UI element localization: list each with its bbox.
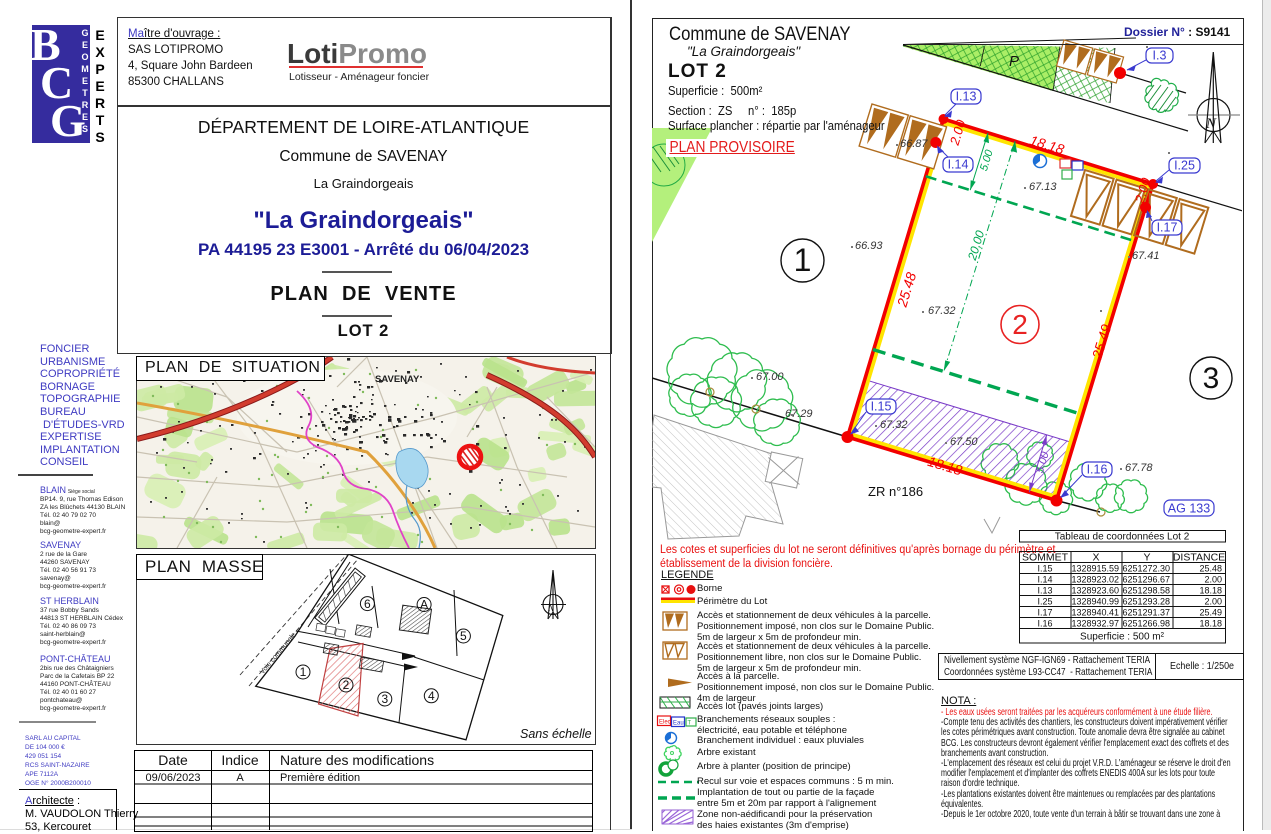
svg-text:P: P <box>95 61 104 77</box>
svg-text:G: G <box>50 95 86 146</box>
svg-text:2: 2 <box>1012 309 1028 340</box>
svg-text:6251293.28: 6251293.28 <box>1122 597 1170 607</box>
svg-text:Nature des modifications: Nature des modifications <box>280 752 434 768</box>
svg-text:67.50: 67.50 <box>950 436 978 448</box>
svg-text:S: S <box>95 129 104 145</box>
svg-text:I.17: I.17 <box>1157 221 1178 235</box>
svg-text:6251296.67: 6251296.67 <box>1122 575 1170 585</box>
svg-text:X: X <box>95 44 105 60</box>
svg-text:E: E <box>82 112 88 122</box>
svg-text:Superficie : 500 m²: Superficie : 500 m² <box>1080 632 1165 643</box>
svg-text:1328923.60: 1328923.60 <box>1071 586 1119 596</box>
svg-text:X: X <box>1092 552 1099 564</box>
svg-text:4: 4 <box>428 689 435 703</box>
svg-text:2: 2 <box>343 678 350 692</box>
svg-text:I.15: I.15 <box>871 400 892 414</box>
svg-text:E: E <box>95 78 104 94</box>
svg-text:Tableau de coordonnées Lot 2: Tableau de coordonnées Lot 2 <box>1055 532 1190 543</box>
svg-text:6251272.30: 6251272.30 <box>1122 564 1170 574</box>
svg-text:18.18: 18.18 <box>1199 586 1222 596</box>
svg-text:Indice: Indice <box>221 752 259 768</box>
svg-text:6251266.98: 6251266.98 <box>1122 619 1170 629</box>
svg-text:SOMMET: SOMMET <box>1022 552 1069 564</box>
svg-text:1328923.02: 1328923.02 <box>1071 575 1119 585</box>
svg-text:25.49: 25.49 <box>1199 608 1222 618</box>
svg-text:A: A <box>236 772 244 784</box>
svg-text:6251298.58: 6251298.58 <box>1122 586 1170 596</box>
svg-text:ZR n°186: ZR n°186 <box>868 484 923 499</box>
svg-text:67.41: 67.41 <box>1132 250 1160 262</box>
svg-text:67.00: 67.00 <box>756 371 784 383</box>
svg-text:66.93: 66.93 <box>855 240 883 252</box>
svg-text:66.87: 66.87 <box>900 138 928 150</box>
svg-text:I.13: I.13 <box>956 90 977 104</box>
svg-text:R: R <box>95 95 105 111</box>
svg-text:Eau: Eau <box>673 721 684 727</box>
svg-text:T: T <box>688 721 692 727</box>
svg-text:I.3: I.3 <box>1153 49 1167 63</box>
svg-text:I.15: I.15 <box>1037 564 1052 574</box>
svg-text:67.32: 67.32 <box>880 419 908 431</box>
svg-text:3: 3 <box>381 692 388 706</box>
svg-text:1328940.41: 1328940.41 <box>1071 608 1119 618</box>
svg-text:SAVENAY: SAVENAY <box>375 374 420 385</box>
svg-text:I.25: I.25 <box>1037 597 1052 607</box>
svg-text:67.78: 67.78 <box>1125 462 1153 474</box>
svg-text:5.00: 5.00 <box>978 148 996 173</box>
svg-text:I.13: I.13 <box>1037 586 1052 596</box>
svg-text:Elec: Elec <box>659 720 671 726</box>
svg-text:67.29: 67.29 <box>785 408 813 420</box>
svg-text:I.25: I.25 <box>1174 159 1195 173</box>
svg-text:25.49: 25.49 <box>1088 322 1114 361</box>
svg-text:1328940.99: 1328940.99 <box>1071 597 1119 607</box>
svg-text:I.16: I.16 <box>1087 463 1108 477</box>
svg-text:AG 133: AG 133 <box>1168 502 1210 516</box>
svg-text:20,00: 20,00 <box>965 229 988 263</box>
svg-text:T: T <box>96 112 105 128</box>
svg-text:O: O <box>81 52 88 62</box>
svg-text:18.18: 18.18 <box>1199 619 1222 629</box>
svg-text:6251291.37: 6251291.37 <box>1122 608 1170 618</box>
svg-text:6: 6 <box>364 597 371 611</box>
svg-text:Première édition: Première édition <box>280 772 360 784</box>
svg-text:67.32: 67.32 <box>928 305 956 317</box>
svg-text:5: 5 <box>460 629 467 643</box>
svg-text:1328915.59: 1328915.59 <box>1071 564 1119 574</box>
svg-text:Date: Date <box>158 752 188 768</box>
svg-text:3: 3 <box>1203 362 1220 395</box>
svg-text:P: P <box>1009 53 1019 70</box>
svg-text:E: E <box>82 40 88 50</box>
svg-text:1328932.97: 1328932.97 <box>1071 619 1119 629</box>
svg-text:1: 1 <box>300 665 307 679</box>
svg-text:67.13: 67.13 <box>1029 181 1057 193</box>
svg-text:1: 1 <box>794 242 812 278</box>
svg-text:I.16: I.16 <box>1037 619 1052 629</box>
svg-text:S: S <box>82 124 88 134</box>
svg-text:G: G <box>81 28 88 38</box>
svg-text:I.14: I.14 <box>1037 575 1052 585</box>
svg-text:2.00: 2.00 <box>1204 575 1222 585</box>
svg-text:25.48: 25.48 <box>1199 564 1222 574</box>
svg-text:T: T <box>82 88 88 98</box>
svg-text:N: N <box>1205 116 1217 132</box>
svg-text:Y: Y <box>1143 552 1150 564</box>
svg-text:E: E <box>82 76 88 86</box>
svg-text:I.17: I.17 <box>1037 608 1052 618</box>
svg-text:I.14: I.14 <box>948 158 969 172</box>
svg-text:Voie communale: Voie communale <box>259 631 298 675</box>
svg-text:DISTANCE: DISTANCE <box>1173 552 1225 564</box>
svg-text:N: N <box>547 603 555 613</box>
svg-text:R: R <box>82 100 89 110</box>
svg-text:2.00: 2.00 <box>1204 597 1222 607</box>
svg-text:09/06/2023: 09/06/2023 <box>145 772 200 784</box>
svg-text:A: A <box>420 598 428 612</box>
svg-text:M: M <box>81 64 89 74</box>
svg-text:E: E <box>95 27 104 43</box>
